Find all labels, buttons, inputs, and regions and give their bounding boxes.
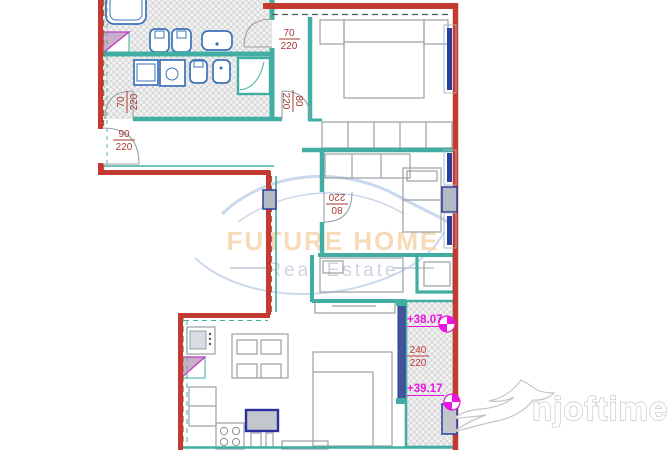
floor-plan-image: FUTURE HOME Real Estate xyxy=(0,0,670,450)
window-bedroom2-lower xyxy=(447,216,452,245)
svg-text:70: 70 xyxy=(116,96,127,108)
burner xyxy=(220,427,227,434)
svg-text:80: 80 xyxy=(293,95,304,107)
chair xyxy=(237,364,257,378)
watermark-brand-text: FUTURE HOME xyxy=(227,226,440,256)
svg-text:220: 220 xyxy=(129,93,140,110)
entrance-opening xyxy=(95,129,105,163)
chair xyxy=(261,364,281,378)
svg-text:70: 70 xyxy=(283,28,295,39)
shower-cabin xyxy=(238,58,270,94)
window-bedroom2-upper xyxy=(447,153,452,182)
svg-text:90: 90 xyxy=(118,129,130,140)
toilet-icon xyxy=(150,29,169,52)
sink-icon xyxy=(202,31,232,50)
stove xyxy=(216,423,244,449)
closet-inner xyxy=(424,262,450,286)
svg-text:220: 220 xyxy=(116,142,133,153)
burner xyxy=(220,438,227,445)
svg-text:220: 220 xyxy=(328,191,345,202)
bidet-icon xyxy=(213,60,230,83)
washing-machine-icon xyxy=(160,60,185,86)
single-bed-pillow xyxy=(407,171,437,181)
double-bed xyxy=(344,20,424,98)
balcony-door-glass xyxy=(398,304,405,400)
svg-text:220: 220 xyxy=(280,93,291,110)
label-door-corridor: 70 220 xyxy=(279,28,300,52)
label-door-entrance: 90 220 xyxy=(113,129,135,153)
dining-table xyxy=(232,334,288,378)
nightstand-left xyxy=(320,20,344,44)
burner xyxy=(232,427,239,434)
svg-text:80: 80 xyxy=(331,204,343,215)
level-marker-lower xyxy=(444,394,460,410)
wall-box-hallway xyxy=(263,190,276,209)
svg-text:220: 220 xyxy=(281,41,298,52)
kitchen-island xyxy=(246,410,278,431)
chair xyxy=(237,340,257,354)
sink-drain xyxy=(215,42,218,45)
wardrobe-bedroom2 xyxy=(325,154,410,178)
chair xyxy=(261,340,281,354)
label-door-hall: 80 220 xyxy=(280,90,304,112)
label-door-bedroom2: 80 220 xyxy=(326,191,348,215)
site-logo-text: njoftime.al xyxy=(532,390,670,427)
svg-text:220: 220 xyxy=(410,358,427,369)
level-lower-text: +39.17 xyxy=(407,383,443,395)
watermark-tagline-text: Real Estate xyxy=(267,260,398,281)
corner-sofa xyxy=(313,352,392,446)
svg-text:240: 240 xyxy=(410,345,427,356)
level-upper-text: +38.07 xyxy=(407,314,443,326)
column-box xyxy=(442,187,457,212)
kitchen-sink-basin xyxy=(190,331,206,349)
toilet-icon-3 xyxy=(190,60,207,83)
floor-plan-drawing: FUTURE HOME Real Estate xyxy=(0,0,670,450)
level-marker-upper xyxy=(439,316,455,332)
dresser xyxy=(315,302,395,313)
wardrobe-bedroom1 xyxy=(322,122,452,148)
watermark-njoftime: njoftime.al xyxy=(444,380,670,432)
window-bedroom1 xyxy=(447,28,452,90)
shaft-triangle-living xyxy=(181,357,205,378)
burner xyxy=(232,438,239,445)
toilet-icon-2 xyxy=(172,29,191,52)
bidet-drain xyxy=(220,67,223,70)
